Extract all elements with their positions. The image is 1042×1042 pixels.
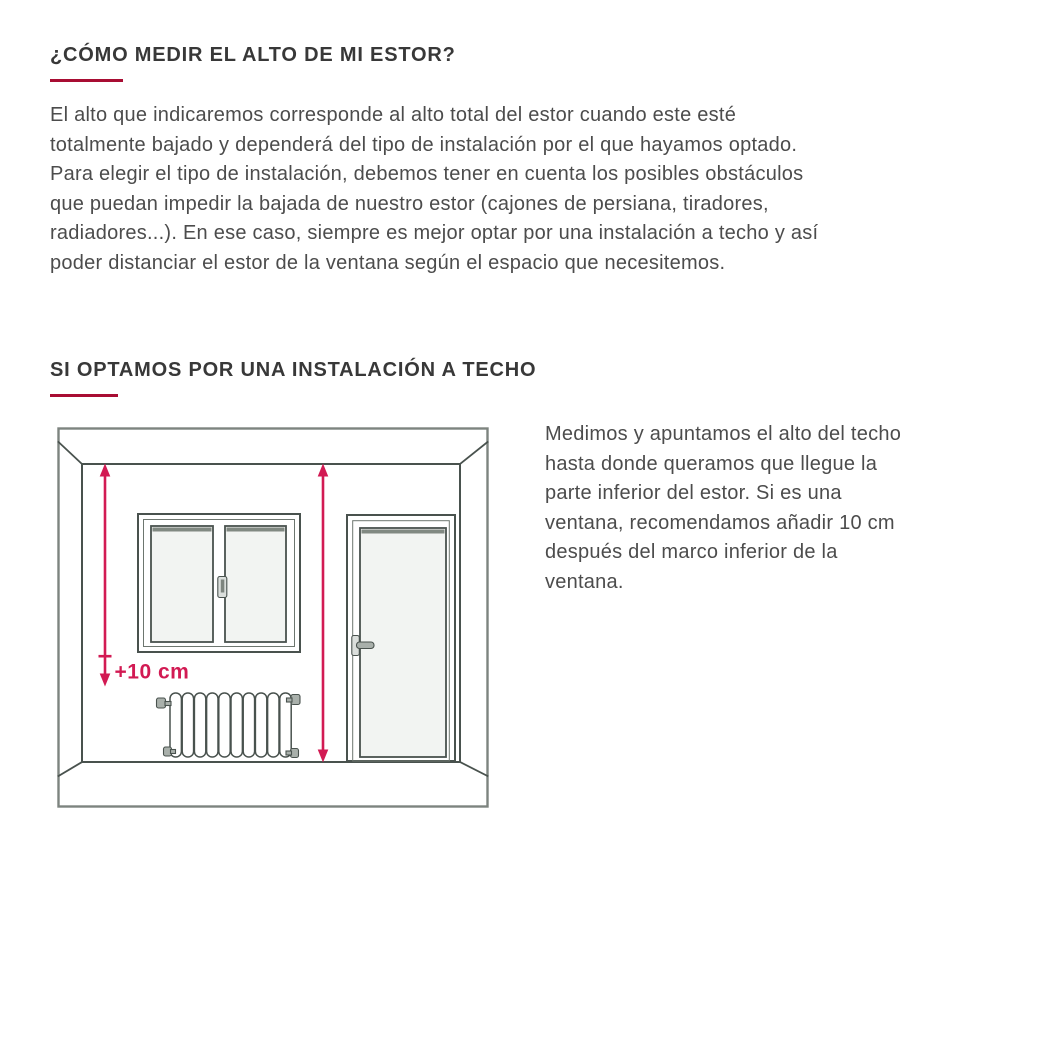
window-handle-grip bbox=[221, 580, 225, 593]
radiator-valve-stem bbox=[165, 702, 171, 706]
paragraph-line: poder distanciar el estor de la ventana … bbox=[50, 249, 990, 279]
window-left-pane bbox=[151, 526, 213, 642]
door-panel-shade bbox=[362, 530, 445, 534]
paragraph-line: ventana. bbox=[545, 568, 1005, 598]
door-icon bbox=[347, 515, 455, 761]
paragraph-line: ventana, recomendamos añadir 10 cm bbox=[545, 509, 1005, 539]
pane-shade bbox=[153, 528, 212, 532]
radiator-valve-stem bbox=[171, 750, 176, 754]
paragraph-line: después del marco inferior de la bbox=[545, 538, 1005, 568]
ceiling-install-paragraph: Medimos y apuntamos el alto del techo ha… bbox=[545, 420, 1005, 597]
paragraph-line: radiadores...). En ese caso, siempre es … bbox=[50, 219, 990, 249]
plus-10cm-label: +10 cm bbox=[115, 661, 190, 684]
paragraph-line: El alto que indicaremos corresponde al a… bbox=[50, 101, 990, 131]
window-icon bbox=[138, 514, 300, 652]
paragraph-line: hasta donde queramos que llegue la bbox=[545, 450, 1005, 480]
paragraph-line: Medimos y apuntamos el alto del techo bbox=[545, 420, 1005, 450]
radiator-valve-stem bbox=[287, 698, 293, 702]
radiator-valve bbox=[157, 698, 166, 708]
paragraph-line: totalmente bajado y dependerá del tipo d… bbox=[50, 131, 990, 161]
page-title: ¿CÓMO MEDIR EL ALTO DE MI ESTOR? bbox=[50, 44, 456, 67]
section-title-underline bbox=[50, 394, 118, 397]
door-handle-icon bbox=[357, 642, 375, 649]
section-title: SI OPTAMOS POR UNA INSTALACIÓN A TECHO bbox=[50, 359, 536, 382]
intro-paragraph: El alto que indicaremos corresponde al a… bbox=[50, 101, 990, 278]
title-underline bbox=[50, 79, 123, 82]
paragraph-line: Para elegir el tipo de instalación, debe… bbox=[50, 160, 990, 190]
measurement-diagram: +10 cm bbox=[57, 427, 489, 808]
paragraph-line: que puedan impedir la bajada de nuestro … bbox=[50, 190, 990, 220]
window-right-pane bbox=[225, 526, 286, 642]
radiator-valve-stem bbox=[286, 751, 292, 755]
paragraph-line: parte inferior del estor. Si es una bbox=[545, 479, 1005, 509]
pane-shade bbox=[227, 528, 285, 532]
radiator-icon bbox=[157, 693, 301, 758]
